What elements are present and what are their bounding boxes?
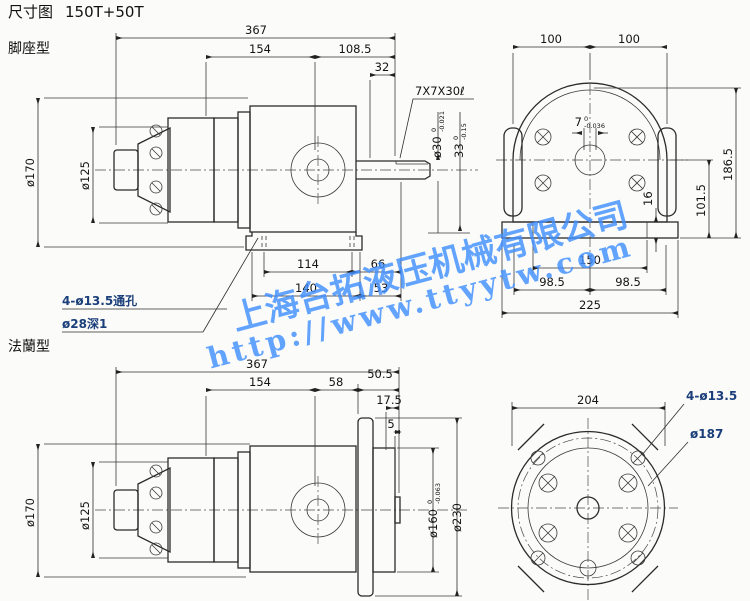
callout-flange-holes: 4-ø13.5 — [686, 389, 737, 403]
dim-shaft-dia: ø30 — [430, 136, 444, 158]
dim-dia-125: ø125 — [78, 161, 92, 190]
dim-140: 140 — [295, 281, 317, 295]
callout-recess: ø28深1 — [62, 316, 107, 331]
shaft-dia-tol-up: 0 — [430, 128, 438, 132]
section-label-flange: 法蘭型 — [8, 339, 50, 355]
dim-16: 16 — [641, 191, 655, 206]
dim-100-left: 100 — [540, 32, 562, 46]
dia-160-tol-up: 0 — [426, 500, 434, 504]
dim-114: 114 — [297, 257, 319, 271]
dim-66: 66 — [371, 257, 386, 271]
key-spec-label: 7X7X30ℓ — [415, 84, 465, 98]
dim-98-5-left: 98.5 — [539, 275, 565, 289]
model-number: 150T+50T — [65, 3, 144, 21]
dim-186-5: 186.5 — [721, 148, 735, 181]
dim-53: 53 — [374, 281, 389, 295]
dim-58: 58 — [329, 375, 344, 389]
dim-101-5: 101.5 — [694, 184, 708, 217]
callout-bolt-circle: ø187 — [690, 427, 723, 441]
dim-dia-160: ø160 — [426, 509, 440, 538]
key-width-tol-dn: -0.036 — [584, 122, 605, 130]
dia-160-tol-dn: -0.063 — [434, 483, 442, 504]
dim-108-5: 108.5 — [339, 42, 372, 56]
dim-key-height: 33 — [452, 143, 466, 158]
key-height-tol-up: 0 — [452, 136, 460, 140]
dim-50-5: 50.5 — [367, 367, 393, 381]
dim-5: 5 — [387, 417, 394, 431]
dim-225: 225 — [579, 298, 601, 312]
key-height-tol-dn: -0.15 — [460, 123, 468, 140]
dim-overall-length: 367 — [245, 23, 267, 37]
dim-key-width: 7 — [575, 115, 582, 129]
dim-dia-125-flange: ø125 — [78, 501, 92, 530]
section-label-foot: 脚座型 — [8, 41, 50, 57]
dim-154: 154 — [249, 42, 271, 56]
dim-98-5-right: 98.5 — [615, 275, 641, 289]
dim-dia-170: ø170 — [23, 158, 37, 187]
dim-17-5: 17.5 — [376, 393, 402, 407]
dim-dia-230: ø230 — [450, 503, 464, 532]
dim-32: 32 — [375, 60, 390, 74]
shaft-dia-tol-dn: -0.021 — [438, 111, 446, 132]
dim-154-flange: 154 — [249, 375, 271, 389]
dim-204: 204 — [577, 393, 599, 407]
dim-overall-length-flange: 367 — [246, 357, 268, 371]
page-title: 尺寸图 — [8, 3, 53, 21]
dimension-drawing: 尺寸图 150T+50T 脚座型 法蘭型 367 — [0, 0, 750, 601]
callout-mounting-holes: 4-ø13.5通孔 — [62, 293, 137, 308]
dim-dia-170-flange: ø170 — [23, 498, 37, 527]
dim-100-right: 100 — [618, 32, 640, 46]
